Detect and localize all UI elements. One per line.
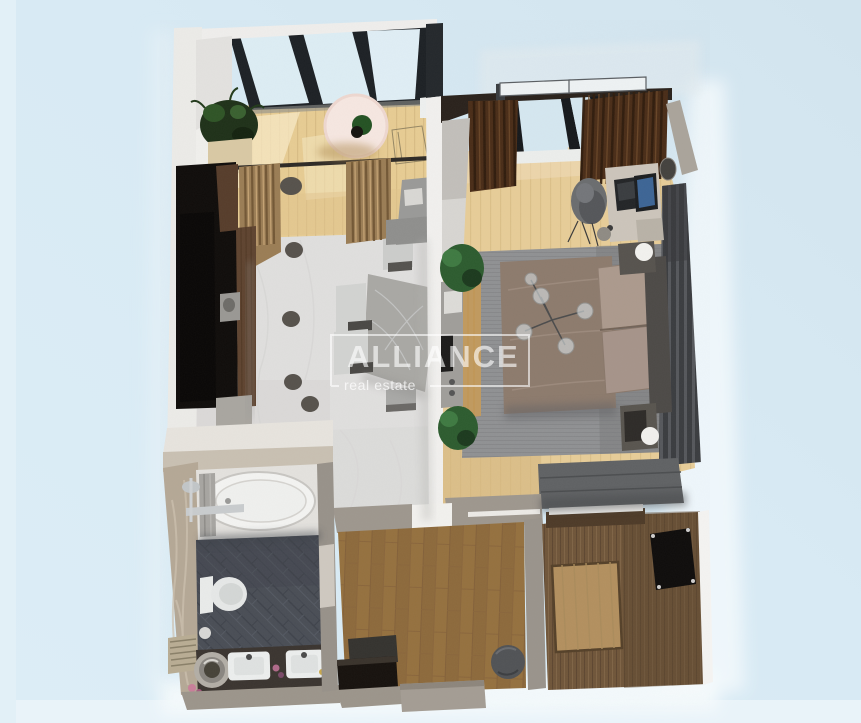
svg-text:ALLIANCE: ALLIANCE xyxy=(347,339,520,374)
svg-text:real estate: real estate xyxy=(344,377,416,393)
